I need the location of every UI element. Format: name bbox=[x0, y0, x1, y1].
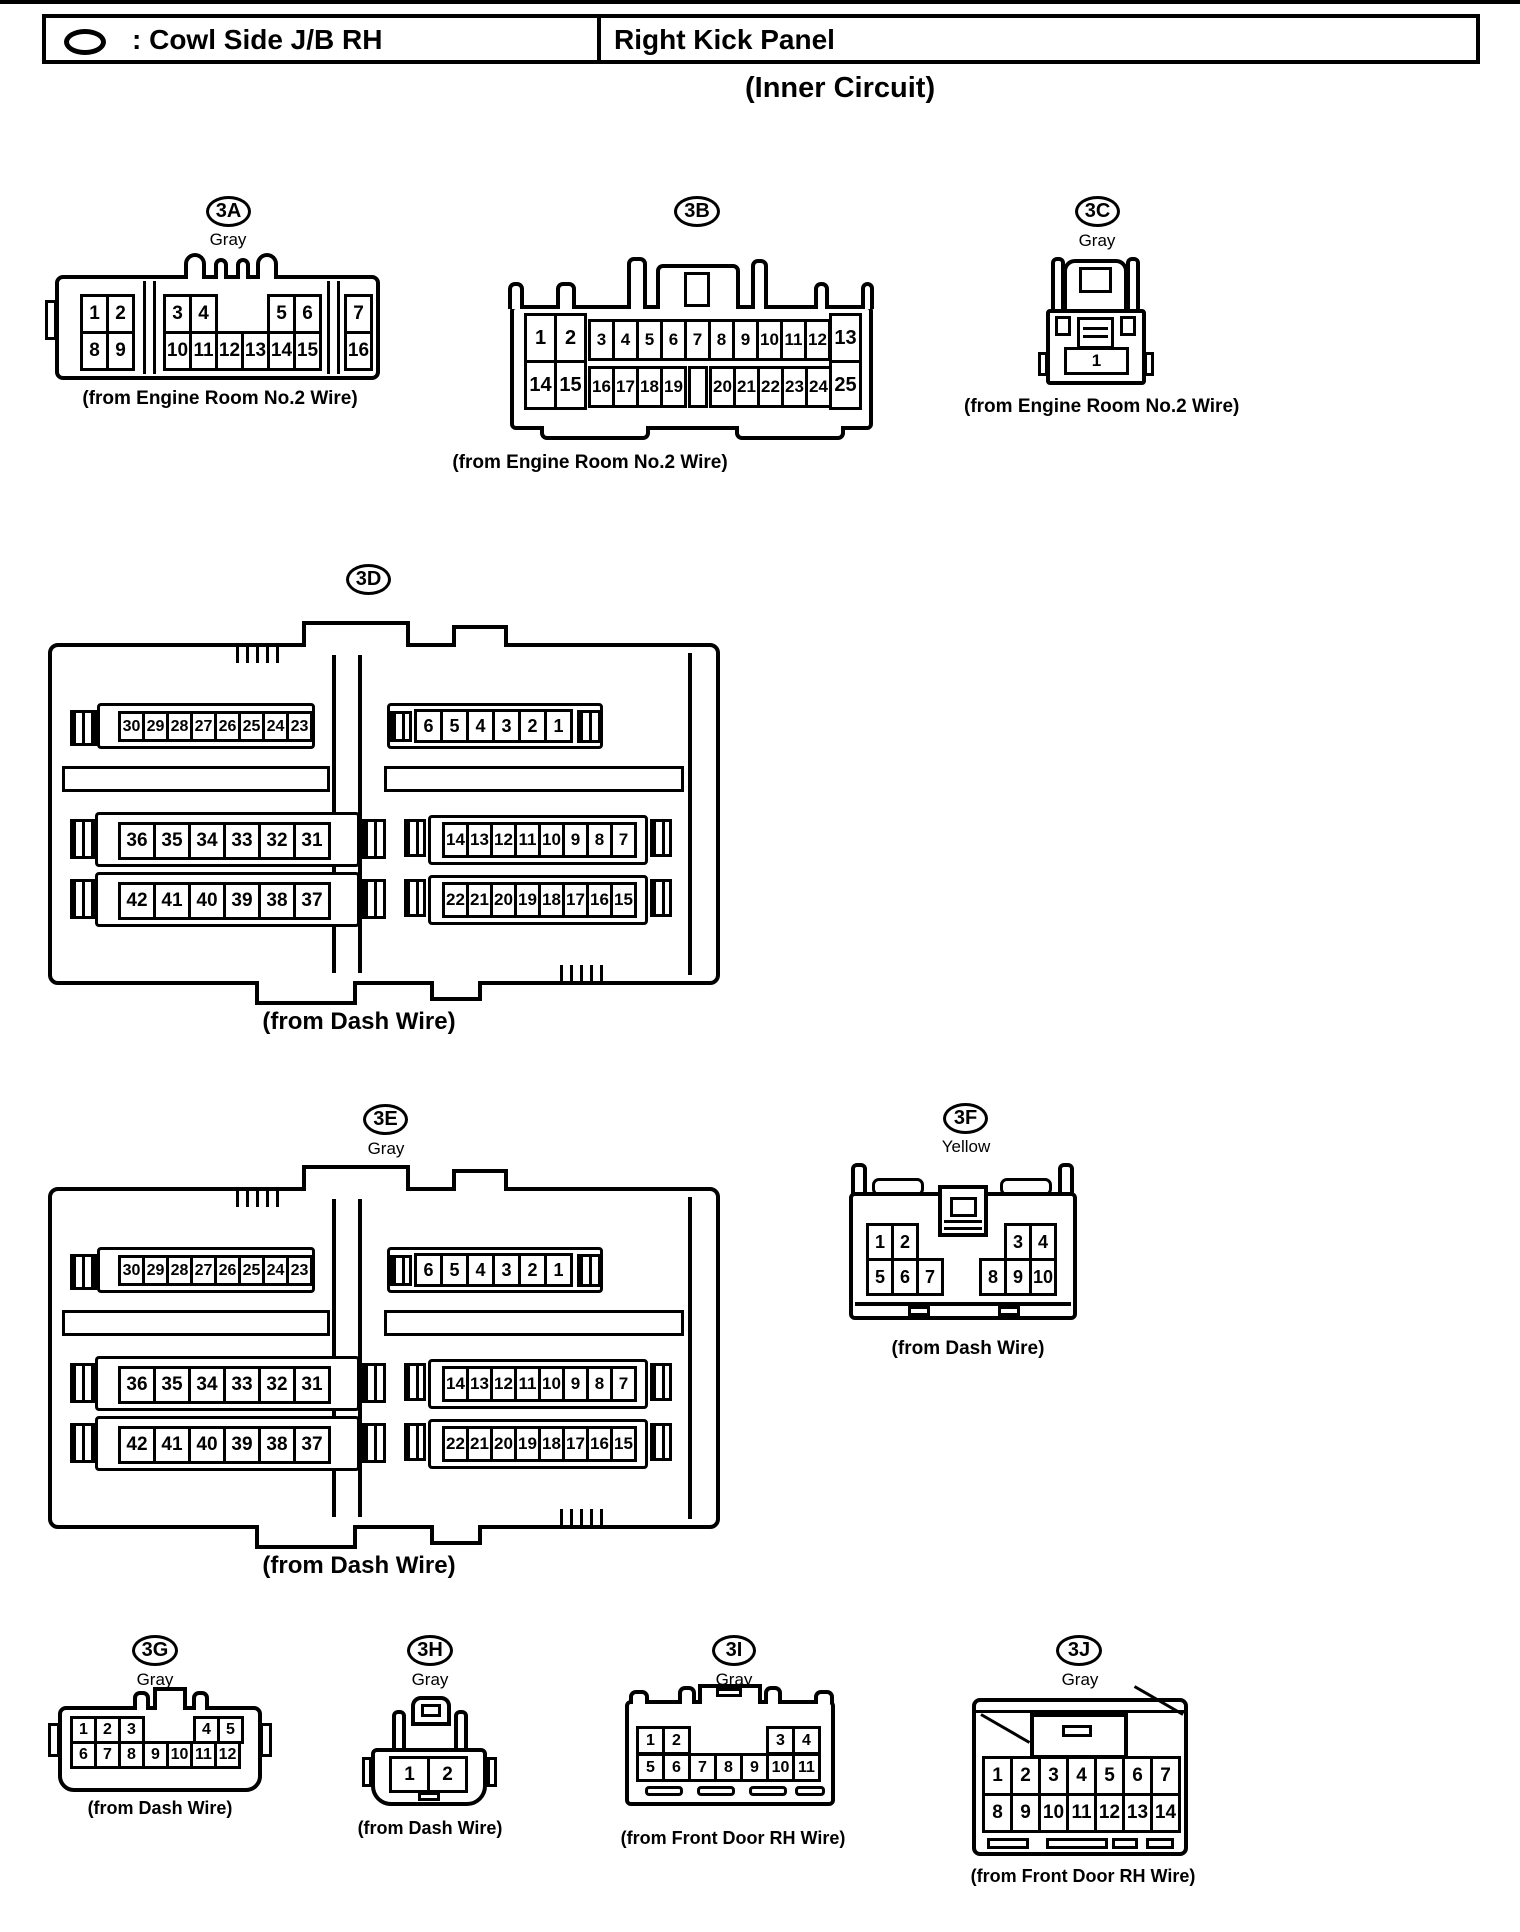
housing-tab bbox=[184, 253, 206, 279]
connector-3f-caption: (from Dash Wire) bbox=[888, 1338, 1048, 1360]
housing-tab bbox=[214, 258, 228, 279]
pin-33: 33 bbox=[223, 1366, 261, 1404]
pin-8: 8 bbox=[80, 331, 109, 371]
pin-30: 30 bbox=[118, 1255, 145, 1286]
side-square bbox=[1120, 316, 1136, 336]
housing-prong bbox=[392, 1710, 406, 1752]
pin-group: 101112131415 bbox=[163, 331, 322, 371]
pin-9: 9 bbox=[1010, 1793, 1041, 1833]
pin-7: 7 bbox=[610, 1366, 637, 1402]
pin-7: 7 bbox=[94, 1741, 121, 1769]
pin-10: 10 bbox=[166, 1741, 193, 1769]
pin-9: 9 bbox=[562, 1366, 589, 1402]
pin-21: 21 bbox=[466, 882, 493, 918]
housing-prong bbox=[454, 1710, 468, 1752]
housing-latch-inner bbox=[716, 1688, 742, 1697]
pin-24: 24 bbox=[262, 711, 289, 742]
housing-tab-bottom bbox=[430, 981, 482, 1001]
mid-shelf bbox=[384, 766, 684, 792]
rail-lock bbox=[70, 1254, 97, 1290]
pin-1: 1 bbox=[80, 294, 109, 334]
pin-31: 31 bbox=[293, 1366, 331, 1404]
pin-26: 26 bbox=[214, 1255, 241, 1286]
housing-foot bbox=[1046, 1838, 1108, 1849]
connector-3i-label: 3I bbox=[712, 1635, 756, 1666]
housing-foot bbox=[908, 1306, 930, 1316]
rail-lock bbox=[404, 1423, 426, 1461]
pin-37: 37 bbox=[293, 1426, 331, 1464]
side-square bbox=[1055, 316, 1071, 336]
bottom-notch bbox=[418, 1792, 440, 1801]
pin-29: 29 bbox=[142, 711, 169, 742]
housing-foot bbox=[1112, 1838, 1138, 1849]
pin-6: 6 bbox=[414, 709, 443, 743]
pin-14: 14 bbox=[267, 331, 296, 371]
pin-1: 1 bbox=[389, 1756, 430, 1793]
pin-18: 18 bbox=[636, 366, 663, 408]
side-bump bbox=[1038, 352, 1048, 376]
pin-5: 5 bbox=[440, 709, 469, 743]
pin-5: 5 bbox=[217, 1716, 244, 1744]
pin-31: 31 bbox=[293, 822, 331, 860]
pin-5: 5 bbox=[866, 1258, 894, 1296]
pin-22: 22 bbox=[442, 1426, 469, 1462]
housing-latch-inner bbox=[950, 1197, 977, 1217]
pin-37: 37 bbox=[293, 882, 331, 920]
pin-3: 3 bbox=[766, 1726, 795, 1755]
pin-group: 16 bbox=[344, 331, 373, 371]
pin-24: 24 bbox=[262, 1255, 289, 1286]
pin-6: 6 bbox=[293, 294, 322, 334]
pin-group: 3029282726252423 bbox=[118, 1255, 313, 1286]
pin-9: 9 bbox=[562, 822, 589, 858]
pin-14: 14 bbox=[1150, 1793, 1181, 1833]
pin-13: 13 bbox=[1122, 1793, 1153, 1833]
connector-3i-caption: (from Front Door RH Wire) bbox=[608, 1828, 858, 1849]
housing-tab bbox=[814, 282, 829, 309]
pin-1: 1 bbox=[1064, 347, 1129, 375]
housing-latch-inner bbox=[1062, 1725, 1092, 1737]
pin-2: 2 bbox=[106, 294, 135, 334]
pin-34: 34 bbox=[188, 1366, 226, 1404]
pin-6: 6 bbox=[70, 1741, 97, 1769]
pin-42: 42 bbox=[118, 1426, 156, 1464]
pin-15: 15 bbox=[293, 331, 322, 371]
pin-group: 25 bbox=[829, 360, 862, 410]
pin-6: 6 bbox=[662, 1753, 691, 1782]
pin-14: 14 bbox=[524, 360, 557, 410]
pin-6: 6 bbox=[891, 1258, 919, 1296]
pin-group: 654321 bbox=[414, 709, 573, 743]
housing-inner-line bbox=[688, 653, 692, 975]
side-bump bbox=[487, 1757, 497, 1787]
latch-line bbox=[1083, 335, 1108, 338]
housing-tab bbox=[678, 1686, 696, 1704]
pin-group: 34 bbox=[163, 294, 218, 334]
pin-12: 12 bbox=[490, 822, 517, 858]
pin-2: 2 bbox=[891, 1223, 919, 1261]
pin-10: 10 bbox=[163, 331, 192, 371]
pin-1: 1 bbox=[544, 1253, 573, 1287]
pin-18: 18 bbox=[538, 1426, 565, 1462]
housing-tab-bottom bbox=[255, 981, 357, 1005]
housing-channel bbox=[143, 281, 156, 374]
housing-tab bbox=[302, 621, 410, 647]
housing-foot bbox=[795, 1786, 825, 1796]
header-divider bbox=[597, 18, 601, 60]
pin-39: 39 bbox=[223, 882, 261, 920]
pin-32: 32 bbox=[258, 822, 296, 860]
connector-3e-label: 3E bbox=[363, 1104, 408, 1135]
pin-41: 41 bbox=[153, 882, 191, 920]
connector-3c-label: 3C bbox=[1075, 196, 1120, 227]
housing-tab bbox=[452, 625, 508, 647]
pin-3: 3 bbox=[588, 319, 615, 361]
pin-group: 2221201918171615 bbox=[442, 882, 637, 918]
pin-27: 27 bbox=[190, 1255, 217, 1286]
connector-3c-color: Gray bbox=[1068, 231, 1126, 251]
pin-35: 35 bbox=[153, 822, 191, 860]
housing-foot bbox=[735, 426, 845, 440]
pin-13: 13 bbox=[466, 822, 493, 858]
pin-11: 11 bbox=[780, 319, 807, 361]
pin-13: 13 bbox=[829, 313, 862, 363]
housing-latch bbox=[1077, 317, 1114, 349]
rail-lock bbox=[650, 819, 672, 857]
pin-4: 4 bbox=[466, 1253, 495, 1287]
housing-ticks bbox=[236, 1191, 280, 1207]
housing-tab bbox=[133, 1691, 150, 1710]
pin-group: 2021222324 bbox=[709, 366, 832, 408]
connector-3e-caption: (from Dash Wire) bbox=[219, 1552, 499, 1580]
pin-19: 19 bbox=[514, 882, 541, 918]
pin-38: 38 bbox=[258, 882, 296, 920]
pin-7: 7 bbox=[610, 822, 637, 858]
rail-lock bbox=[650, 1423, 672, 1461]
housing-channel bbox=[327, 281, 340, 374]
pin-11: 11 bbox=[190, 1741, 217, 1769]
pin-group: 8910 bbox=[979, 1258, 1057, 1296]
pin-7: 7 bbox=[684, 319, 711, 361]
connector-3b-caption: (from Engine Room No.2 Wire) bbox=[450, 452, 730, 474]
pin-group: 6789101112 bbox=[70, 1741, 241, 1769]
pin-12: 12 bbox=[215, 331, 244, 371]
connector-3d-label: 3D bbox=[346, 564, 391, 595]
pin-29: 29 bbox=[142, 1255, 169, 1286]
pin-group: 12 bbox=[636, 1726, 691, 1755]
pin-6: 6 bbox=[1122, 1756, 1153, 1796]
pin-8: 8 bbox=[982, 1793, 1013, 1833]
pin-group: 567 bbox=[866, 1258, 944, 1296]
pin-13: 13 bbox=[241, 331, 270, 371]
pin-21: 21 bbox=[733, 366, 760, 408]
pin-27: 27 bbox=[190, 711, 217, 742]
housing-tab bbox=[256, 253, 278, 279]
housing-ticks bbox=[236, 647, 280, 663]
pin-group: 891011121314 bbox=[982, 1793, 1181, 1833]
pin-23: 23 bbox=[286, 711, 313, 742]
rail-lock bbox=[577, 710, 601, 743]
rail-lock bbox=[362, 1423, 386, 1463]
pin-8: 8 bbox=[586, 1366, 613, 1402]
rail-lock bbox=[390, 1255, 412, 1286]
pin-group: 1 bbox=[1064, 347, 1129, 375]
housing-tab bbox=[302, 1165, 410, 1191]
rail-lock bbox=[650, 1363, 672, 1401]
pin-34: 34 bbox=[188, 822, 226, 860]
pin-11: 11 bbox=[514, 1366, 541, 1402]
pin-1: 1 bbox=[982, 1756, 1013, 1796]
connector-3a-label: 3A bbox=[206, 196, 251, 227]
pin-group: 7 bbox=[344, 294, 373, 334]
pin-5: 5 bbox=[267, 294, 296, 334]
pin-12: 12 bbox=[1094, 1793, 1125, 1833]
pin-26: 26 bbox=[214, 711, 241, 742]
pin-8: 8 bbox=[118, 1741, 145, 1769]
connector-3g-caption: (from Dash Wire) bbox=[58, 1798, 262, 1819]
pin-41: 41 bbox=[153, 1426, 191, 1464]
pin-group: 13 bbox=[829, 313, 862, 363]
pin-3: 3 bbox=[1038, 1756, 1069, 1796]
housing-tab bbox=[629, 1690, 649, 1704]
pin-group: 34 bbox=[766, 1726, 821, 1755]
pin-2: 2 bbox=[554, 313, 587, 363]
housing-tab bbox=[556, 282, 576, 309]
rail-lock bbox=[362, 1363, 386, 1403]
page-top-rule bbox=[0, 0, 1520, 4]
pin-19: 19 bbox=[514, 1426, 541, 1462]
pin-10: 10 bbox=[1029, 1258, 1057, 1296]
pin-group: 363534333231 bbox=[118, 822, 331, 860]
housing-foot bbox=[749, 1786, 787, 1796]
pin-8: 8 bbox=[586, 822, 613, 858]
pin-1: 1 bbox=[70, 1716, 97, 1744]
pin-13: 13 bbox=[466, 1366, 493, 1402]
connector-3d-caption: (from Dash Wire) bbox=[219, 1008, 499, 1036]
connector-oval-symbol-icon bbox=[64, 29, 106, 55]
pin-4: 4 bbox=[466, 709, 495, 743]
pin-4: 4 bbox=[189, 294, 218, 334]
connector-3a-caption: (from Engine Room No.2 Wire) bbox=[77, 388, 363, 410]
side-bump bbox=[260, 1723, 272, 1757]
pin-group: 654321 bbox=[414, 1253, 573, 1287]
header-subtitle: (Inner Circuit) bbox=[745, 72, 985, 105]
pin-group: 1415 bbox=[524, 360, 587, 410]
pin-3: 3 bbox=[118, 1716, 145, 1744]
pin-group: 567891011 bbox=[636, 1753, 821, 1782]
pin-36: 36 bbox=[118, 1366, 156, 1404]
pin-1: 1 bbox=[636, 1726, 665, 1755]
pin-group: 12 bbox=[524, 313, 587, 363]
pin-23: 23 bbox=[286, 1255, 313, 1286]
latch-hatch bbox=[944, 1220, 982, 1232]
pin-group: 34 bbox=[1004, 1223, 1057, 1261]
pin-20: 20 bbox=[490, 882, 517, 918]
connector-3h-label: 3H bbox=[407, 1635, 453, 1666]
pin-group: 1413121110987 bbox=[442, 822, 637, 858]
empty-slot bbox=[688, 366, 708, 408]
pin-10: 10 bbox=[538, 822, 565, 858]
pin-19: 19 bbox=[660, 366, 687, 408]
side-bump bbox=[362, 1757, 372, 1787]
pin-8: 8 bbox=[708, 319, 735, 361]
mid-shelf bbox=[62, 766, 330, 792]
pin-group: 56 bbox=[267, 294, 322, 334]
pin-17: 17 bbox=[612, 366, 639, 408]
pin-12: 12 bbox=[214, 1741, 241, 1769]
connector-3a-color: Gray bbox=[200, 230, 256, 250]
pin-20: 20 bbox=[490, 1426, 517, 1462]
pin-28: 28 bbox=[166, 711, 193, 742]
pin-12: 12 bbox=[804, 319, 831, 361]
mid-shelf bbox=[384, 1310, 684, 1336]
pin-4: 4 bbox=[792, 1726, 821, 1755]
pin-1: 1 bbox=[544, 709, 573, 743]
pin-25: 25 bbox=[238, 711, 265, 742]
pin-21: 21 bbox=[466, 1426, 493, 1462]
pin-group: 424140393837 bbox=[118, 882, 331, 920]
pin-2: 2 bbox=[1010, 1756, 1041, 1796]
pin-group: 1234567 bbox=[982, 1756, 1181, 1796]
pin-10: 10 bbox=[538, 1366, 565, 1402]
connector-3j-label: 3J bbox=[1056, 1635, 1102, 1666]
pin-2: 2 bbox=[518, 1253, 547, 1287]
pin-9: 9 bbox=[740, 1753, 769, 1782]
housing-tab bbox=[751, 259, 768, 309]
pin-group: 1413121110987 bbox=[442, 1366, 637, 1402]
pin-3: 3 bbox=[492, 709, 521, 743]
pin-group: 12 bbox=[389, 1756, 468, 1793]
pin-9: 9 bbox=[142, 1741, 169, 1769]
pin-group: 12 bbox=[80, 294, 135, 334]
pin-22: 22 bbox=[442, 882, 469, 918]
housing-foot bbox=[645, 1786, 683, 1796]
pin-group: 123 bbox=[70, 1716, 145, 1744]
pin-group: 3456789101112 bbox=[588, 319, 831, 361]
housing-tab bbox=[236, 258, 250, 279]
housing-inner-line bbox=[855, 1302, 1071, 1306]
housing-foot bbox=[1146, 1838, 1174, 1849]
connector-3g-label: 3G bbox=[132, 1635, 178, 1666]
pin-40: 40 bbox=[188, 882, 226, 920]
pin-9: 9 bbox=[106, 331, 135, 371]
pin-23: 23 bbox=[781, 366, 808, 408]
wiring-diagram-page: { "colors": { "ink": "#000000", "paper":… bbox=[0, 0, 1520, 1932]
pin-11: 11 bbox=[514, 822, 541, 858]
housing-foot bbox=[987, 1838, 1029, 1849]
housing-ticks bbox=[560, 1509, 604, 1525]
pin-group: 12 bbox=[866, 1223, 919, 1261]
housing-tab bbox=[153, 1687, 187, 1710]
rail-lock bbox=[404, 819, 426, 857]
connector-3h-color: Gray bbox=[400, 1670, 460, 1690]
pin-group: 424140393837 bbox=[118, 1426, 331, 1464]
rail-lock bbox=[70, 1363, 96, 1403]
pin-16: 16 bbox=[586, 882, 613, 918]
pin-20: 20 bbox=[709, 366, 736, 408]
pin-group: 45 bbox=[193, 1716, 244, 1744]
pin-17: 17 bbox=[562, 882, 589, 918]
housing-tab bbox=[192, 1691, 209, 1710]
pin-11: 11 bbox=[189, 331, 218, 371]
pin-2: 2 bbox=[518, 709, 547, 743]
pin-6: 6 bbox=[660, 319, 687, 361]
housing-foot bbox=[998, 1306, 1020, 1316]
pin-11: 11 bbox=[1066, 1793, 1097, 1833]
pin-8: 8 bbox=[979, 1258, 1007, 1296]
pin-42: 42 bbox=[118, 882, 156, 920]
pin-39: 39 bbox=[223, 1426, 261, 1464]
connector-3h-caption: (from Dash Wire) bbox=[352, 1818, 508, 1839]
rail-lock bbox=[70, 819, 96, 859]
pin-15: 15 bbox=[610, 882, 637, 918]
pin-32: 32 bbox=[258, 1366, 296, 1404]
pin-group: 16171819 bbox=[588, 366, 687, 408]
pin-12: 12 bbox=[490, 1366, 517, 1402]
housing-foot bbox=[540, 426, 650, 440]
housing-latch-inner bbox=[421, 1704, 441, 1717]
pin-2: 2 bbox=[662, 1726, 691, 1755]
upper-latch bbox=[1079, 267, 1112, 293]
pin-group: 3029282726252423 bbox=[118, 711, 313, 742]
connector-3f-label: 3F bbox=[943, 1103, 988, 1134]
pin-5: 5 bbox=[636, 1753, 665, 1782]
rail-lock bbox=[70, 1423, 96, 1463]
rail-lock bbox=[404, 1363, 426, 1401]
pin-30: 30 bbox=[118, 711, 145, 742]
housing-tab bbox=[861, 282, 874, 309]
latch-line bbox=[1083, 327, 1108, 330]
pin-3: 3 bbox=[1004, 1223, 1032, 1261]
pin-35: 35 bbox=[153, 1366, 191, 1404]
pin-16: 16 bbox=[344, 331, 373, 371]
housing-tab bbox=[627, 257, 647, 309]
housing-foot bbox=[697, 1786, 735, 1796]
housing-inner-line bbox=[688, 1197, 692, 1519]
pin-25: 25 bbox=[238, 1255, 265, 1286]
pin-5: 5 bbox=[636, 319, 663, 361]
header-title-left: : Cowl Side J/B RH bbox=[132, 24, 382, 56]
pin-22: 22 bbox=[757, 366, 784, 408]
pin-1: 1 bbox=[524, 313, 557, 363]
pin-16: 16 bbox=[588, 366, 615, 408]
housing-ticks bbox=[560, 965, 604, 981]
pin-1: 1 bbox=[866, 1223, 894, 1261]
housing-tab-bottom bbox=[430, 1525, 482, 1545]
pin-4: 4 bbox=[1066, 1756, 1097, 1796]
pin-10: 10 bbox=[756, 319, 783, 361]
housing-tab bbox=[452, 1169, 508, 1191]
pin-14: 14 bbox=[442, 822, 469, 858]
pin-5: 5 bbox=[440, 1253, 469, 1287]
pin-9: 9 bbox=[732, 319, 759, 361]
rail-lock bbox=[390, 711, 412, 742]
housing-tab bbox=[814, 1690, 834, 1704]
pin-38: 38 bbox=[258, 1426, 296, 1464]
pin-7: 7 bbox=[344, 294, 373, 334]
rail-lock bbox=[650, 879, 672, 917]
pin-28: 28 bbox=[166, 1255, 193, 1286]
connector-3b-label: 3B bbox=[674, 196, 720, 227]
pin-group: 2221201918171615 bbox=[442, 1426, 637, 1462]
pin-25: 25 bbox=[829, 360, 862, 410]
pin-5: 5 bbox=[1094, 1756, 1125, 1796]
housing-tab-bottom bbox=[255, 1525, 357, 1549]
pin-6: 6 bbox=[414, 1253, 443, 1287]
header-box: : Cowl Side J/B RH Right Kick Panel bbox=[42, 14, 1480, 64]
pin-18: 18 bbox=[538, 882, 565, 918]
connector-3e-color: Gray bbox=[360, 1139, 412, 1159]
